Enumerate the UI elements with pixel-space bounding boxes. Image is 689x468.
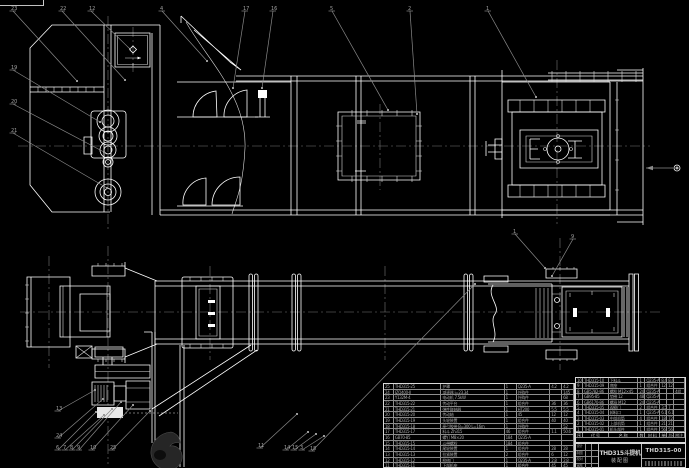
bom-cell: 组合件 — [517, 429, 551, 434]
bom-cell: 底座 — [609, 383, 639, 387]
watermark-logo — [151, 432, 182, 468]
bom-cell: 弹性联轴器 — [441, 407, 504, 412]
bom-left-table: 25THD315-25护罩1Q235-A4.24.224JZQ400-Ⅱ减速器 … — [383, 383, 575, 468]
bom-cell: 6.1 — [667, 410, 674, 414]
bom-cell: 50.6 — [562, 429, 574, 434]
bom-cell: 1 — [638, 410, 645, 414]
bom-cell: 45 — [517, 412, 551, 417]
bom-cell: 垫圈 12 — [609, 394, 639, 398]
leader-line — [410, 11, 417, 114]
bom-cell: 1 — [505, 446, 517, 451]
bom-cell: 料斗 Zh315 — [441, 429, 504, 434]
callout-number: 16 — [271, 6, 277, 12]
bom-cell: THD315-21 — [394, 407, 441, 412]
callout-number: 12 — [89, 6, 95, 12]
callout-number: 3 — [300, 445, 303, 451]
bom-cell: 7 — [576, 394, 583, 398]
bom-cell: 组合件 — [645, 405, 660, 409]
bom-cell: 12 — [667, 383, 674, 387]
leader-dot — [103, 151, 105, 153]
bom-header-cell: 材 料 — [645, 433, 660, 437]
bom-cell: 24 — [638, 400, 645, 404]
bom-cell: 电动机 7.5kW — [441, 395, 504, 400]
leader-line — [91, 11, 130, 49]
bom-cell — [660, 394, 667, 398]
leader-dot — [416, 113, 418, 115]
leader-line — [552, 239, 573, 276]
leader-line — [515, 234, 545, 268]
bom-cell: THD315-12 — [394, 458, 441, 463]
bom-cell: THD315-03 — [583, 416, 609, 420]
bom-cell: 1 — [638, 378, 645, 382]
bom-cell: 184 — [505, 435, 517, 440]
bom-cell — [562, 435, 574, 440]
bom-cell: Q235-A — [645, 394, 660, 398]
leader-dot — [296, 413, 298, 415]
top-view-elevation — [0, 0, 680, 225]
access-door — [115, 33, 150, 67]
bom-cell: 斗带螺栓 — [441, 441, 504, 446]
bom-cell: 16 — [384, 435, 394, 440]
bom-cell: 4.2 — [550, 384, 562, 389]
bom-cell: THD315-22 — [394, 401, 441, 406]
bom-cell: 21 — [667, 421, 674, 425]
bom-cell — [674, 394, 685, 398]
leader-line — [233, 11, 245, 88]
bom-cell: 组合件 — [645, 383, 660, 387]
bom-cell: 1 — [638, 383, 645, 387]
leader-dot — [307, 431, 309, 433]
leader-dot — [129, 48, 131, 50]
bom-cell: 拉紧装置 — [441, 452, 504, 457]
bom-cell: 2.8 — [562, 458, 574, 463]
leader-dot — [387, 109, 389, 111]
callout-number: 20 — [11, 99, 17, 105]
bom-cell: 中部机筒 — [609, 416, 639, 420]
signature-label: 制图 — [576, 451, 586, 457]
drive-unit — [76, 346, 178, 418]
callout-number: 17 — [243, 6, 249, 12]
callout-number: 22 — [60, 6, 66, 12]
leader-dot — [124, 79, 126, 81]
bom-cell: THD315-05 — [583, 405, 609, 409]
bom-cell: 36 — [562, 401, 574, 406]
leader-dot — [99, 121, 101, 123]
bom-cell — [674, 427, 685, 431]
bom-right-table: 10THD315-10下料斗1Q235-A8.48.49THD315-09底座1… — [575, 377, 686, 443]
bom-cell: 4.2 — [562, 384, 574, 389]
bom-header-cell: 数 — [638, 433, 645, 437]
leader-dot — [474, 283, 476, 285]
leader-dot — [261, 87, 263, 89]
callout-number: 15 — [292, 445, 298, 451]
coupling — [114, 386, 126, 401]
bom-cell: 3 — [576, 416, 583, 420]
callout-number: 8 — [70, 445, 73, 451]
bom-cell: 1 — [505, 395, 517, 400]
bom-cell: 外购件 — [517, 424, 551, 429]
bom-cell: 螺栓 M12×45 — [609, 389, 639, 393]
callout-number: 19 — [11, 65, 17, 71]
bom-cell: 15 — [384, 441, 394, 446]
bom-cell: Q235-A — [645, 400, 660, 404]
bom-cell: 19 — [384, 418, 394, 423]
signature-blank — [592, 457, 598, 463]
bom-cell: 28 — [562, 446, 574, 451]
end-view-box — [486, 68, 680, 225]
leader-dot — [102, 398, 104, 400]
bom-cell — [660, 400, 667, 404]
factory-text-strip — [645, 461, 682, 466]
bom-cell: 检修门 — [441, 458, 504, 463]
bucket — [224, 90, 247, 117]
bom-cell: 10 — [576, 378, 583, 382]
leader-line — [58, 390, 95, 411]
bom-cell — [674, 405, 685, 409]
bom-cell: 45 — [550, 463, 562, 468]
bom-cell: 56 — [660, 427, 667, 431]
bom-cell: 145 — [562, 390, 574, 395]
bom-cell: THD315-15 — [394, 441, 441, 446]
bom-cell: 24 — [384, 390, 394, 395]
bom-cell: 1 — [505, 412, 517, 417]
bom-cell: 72 — [667, 416, 674, 420]
bom-cell: 56 — [667, 427, 674, 431]
bom-cell: 组合件 — [645, 427, 660, 431]
signature-label: 设计 — [576, 444, 586, 450]
bom-cell — [674, 378, 685, 382]
bom-header-cell: 总计 — [667, 433, 674, 437]
leader-line — [488, 11, 536, 97]
bom-cell: 1 — [505, 407, 517, 412]
bom-cell: 1 — [505, 458, 517, 463]
leader-dot — [94, 389, 96, 391]
bom-cell: THD315-18 — [394, 424, 441, 429]
bom-cell: 11 — [384, 463, 394, 468]
bom-header-cell: 单件 — [660, 433, 667, 437]
bom-cell: 组合件 — [645, 416, 660, 420]
bom-cell: 1 — [505, 384, 517, 389]
bom-cell: Q235-A — [645, 378, 660, 382]
bom-cell: 牵引胶带 B=300 L=16m — [441, 424, 504, 429]
callout-number: 9 — [77, 445, 80, 451]
bom-cell: 45 — [562, 463, 574, 468]
signature-row: 审核 — [576, 464, 598, 468]
bom-cell — [667, 400, 674, 404]
head-casing-outline — [30, 25, 160, 212]
bom-cell: 减速器 i=23.34 — [441, 390, 504, 395]
bom-row: 11THD315-11下部机座1组合件4545 — [384, 463, 574, 468]
bom-cell: 8.4 — [667, 378, 674, 382]
bom-cell: 传动平台 — [441, 401, 504, 406]
bom-cell: THD315-13 — [394, 452, 441, 457]
bom-cell: 21 — [660, 421, 667, 425]
signature-label: 审核 — [576, 464, 586, 468]
bom-cell: JZQ400-Ⅱ — [394, 390, 441, 395]
leader-line — [260, 414, 297, 448]
bom-cell: THD315-11 — [394, 463, 441, 468]
drive-shaft — [95, 347, 123, 357]
bom-cell: 40 — [562, 418, 574, 423]
bom-cell — [674, 410, 685, 414]
bom-cell: 5 — [576, 405, 583, 409]
leader-dot — [551, 275, 553, 277]
bom-cell: 2.8 — [550, 458, 562, 463]
leader-line — [332, 11, 388, 110]
drawing-sheet: 2322124171652119202113246789102511141531… — [0, 0, 689, 468]
bom-cell — [550, 441, 562, 446]
bom-cell — [660, 389, 667, 393]
leader-dot — [323, 435, 325, 437]
callout-number: 21 — [11, 128, 17, 134]
bom-cell: 14 — [384, 446, 394, 451]
bom-cell: 5.5 — [562, 407, 574, 412]
bom-cell: 12 — [562, 452, 574, 457]
bom-cell: 组合件 — [517, 401, 551, 406]
callout-number: 18 — [310, 446, 316, 452]
bom-cell: 24 — [638, 389, 645, 393]
signature-blank — [592, 444, 598, 450]
bom-cell — [667, 389, 674, 393]
bom-cell: 13 — [384, 452, 394, 457]
bom-cell: THD315-20 — [394, 412, 441, 417]
boot-section — [25, 262, 157, 363]
sheet-border-corner — [0, 0, 44, 6]
bom-cell: 外购件 — [517, 390, 551, 395]
bom-cell: 5.5 — [550, 407, 562, 412]
bom-cell: THD315-01 — [583, 427, 609, 431]
bom-cell: 观察门 — [609, 405, 639, 409]
bom-cell: 1 — [576, 427, 583, 431]
callout-number: 5 — [330, 6, 333, 12]
callout-number: 6 — [56, 445, 59, 451]
leader-line — [72, 409, 112, 450]
signature-blank — [592, 464, 598, 468]
product-name: THD315斗提机 — [599, 448, 640, 457]
bom-cell: THD315-04 — [583, 410, 609, 414]
bom-cell: THD315-10 — [583, 378, 609, 382]
bom-cell: 48 — [638, 394, 645, 398]
bom-cell: 40 — [550, 418, 562, 423]
bom-cell: 上部机筒 — [609, 421, 639, 425]
bom-cell: Q235-A — [645, 410, 660, 414]
bom-cell: 卸料口 — [609, 410, 639, 414]
bom-cell — [674, 383, 685, 387]
bom-cell — [550, 390, 562, 395]
leader-line — [58, 399, 103, 438]
bom-cell: 4 — [638, 416, 645, 420]
bom-cell: 传动轴 — [441, 412, 504, 417]
bucket — [212, 177, 240, 205]
leader-dot — [111, 408, 113, 410]
bom-cell: THD315-09 — [583, 383, 609, 387]
callout-number: 14 — [284, 445, 290, 451]
bom-cell: 6.1 — [660, 410, 667, 414]
signature-blank — [592, 451, 598, 457]
bom-cell: HT200 — [517, 407, 551, 412]
bom-cell: 组合件 — [517, 441, 551, 446]
bom-cell: 1 — [638, 421, 645, 425]
bom-cell — [674, 421, 685, 425]
bom-cell: 46 — [505, 429, 517, 434]
bom-cell — [562, 441, 574, 446]
leader-dot — [206, 60, 208, 62]
bom-cell: 1 — [505, 401, 517, 406]
callout-number: 7 — [63, 445, 66, 451]
bom-cell: 8 — [576, 389, 583, 393]
bom-cell: 2 — [576, 421, 583, 425]
leader-dot — [232, 87, 234, 89]
bom-cell: 尾轮装置 — [441, 446, 504, 451]
hatch-section — [182, 277, 233, 348]
leader-dot — [132, 404, 134, 406]
bom-cell: Y132M-4 — [394, 395, 441, 400]
callout-number: 1 — [486, 6, 489, 12]
bom-cell: 6 — [550, 452, 562, 457]
bom-cell: 21 — [384, 407, 394, 412]
leader-line — [13, 133, 107, 188]
bucket — [193, 91, 217, 117]
bom-cell: 28 — [550, 446, 562, 451]
bom-cell: THD315-19 — [394, 418, 441, 423]
leader-dot — [120, 401, 122, 403]
leader-line — [62, 11, 125, 80]
callout-number: 25 — [110, 445, 116, 451]
pulley-stack — [84, 110, 126, 205]
bom-cell: 12 — [550, 412, 562, 417]
tension-bolt — [258, 90, 267, 98]
leader-dot — [95, 411, 97, 413]
walkway — [30, 87, 104, 92]
leader-dot — [106, 187, 108, 189]
bom-header-cell: 附注 — [674, 433, 685, 437]
bom-cell — [550, 435, 562, 440]
bom-cell: 18 — [384, 424, 394, 429]
bom-cell: 下料斗 — [609, 378, 639, 382]
bom-cell: 组合件 — [517, 446, 551, 451]
bom-header-cell: 序 — [576, 433, 583, 437]
callout-number: 4 — [160, 6, 163, 12]
bom-cell — [550, 424, 562, 429]
bom-cell: THD315-25 — [394, 384, 441, 389]
bom-cell: 20 — [384, 412, 394, 417]
leader-line — [13, 11, 77, 81]
bom-cell: 螺母 M12 — [609, 400, 639, 404]
signature-grid: 设计制图校对审核 — [576, 444, 599, 467]
bom-cell: 2 — [638, 405, 645, 409]
bom-cell: 6 — [576, 400, 583, 404]
doc-type: 装配图 — [611, 457, 629, 464]
arrowhead-icon — [646, 166, 653, 170]
bom-header-cell: 名 称 — [609, 433, 639, 437]
bucket — [183, 178, 206, 205]
leader-line — [13, 104, 104, 152]
leader-dot — [103, 414, 105, 416]
leader-dot — [315, 433, 317, 435]
bom-cell — [550, 395, 562, 400]
bom-cell: 头轮装置 — [441, 418, 504, 423]
bom-cell: 9 — [576, 383, 583, 387]
bom-cell — [674, 416, 685, 420]
bom-cell: Q235-A — [517, 435, 551, 440]
bom-header-row: 序代 号名 称数材 料单件总计附注 — [576, 432, 685, 438]
bom-header-cell: 代 号 — [583, 433, 609, 437]
bom-cell: 12 — [660, 383, 667, 387]
bom-cell: 1 — [505, 424, 517, 429]
bom-cell — [667, 394, 674, 398]
bom-cell: 12 — [384, 458, 394, 463]
bom-cell: 3.5 — [660, 405, 667, 409]
callout-number: 1 — [513, 229, 516, 235]
bom-cell: 组合件 — [517, 418, 551, 423]
callout-number: 13 — [56, 406, 62, 412]
bom-cell: 护罩 — [441, 384, 504, 389]
bom-cell: Q235-A — [517, 458, 551, 463]
chute-and-buckets — [177, 22, 291, 214]
shaft-end — [547, 138, 569, 160]
bom-cell: 12 — [562, 412, 574, 417]
leader-line — [13, 70, 100, 122]
bom-cell: 2 — [505, 452, 517, 457]
bom-cell: 螺钉 M8×20 — [441, 435, 504, 440]
bom-cell: GB95-85 — [583, 394, 609, 398]
leader-line — [162, 11, 207, 61]
bom-cell: 8.4 — [660, 378, 667, 382]
leader-line — [262, 11, 273, 88]
signature-label: 校对 — [576, 457, 586, 463]
bom-cell: GB6170-86 — [583, 400, 609, 404]
bom-cell: 组合件 — [517, 463, 551, 468]
bom-cell: 组合件 — [517, 452, 551, 457]
bom-cell: Q235-A — [517, 384, 551, 389]
bom-cell: GB70-85 — [394, 435, 441, 440]
bom-cell: 184 — [505, 441, 517, 446]
bom-cell: Q235-A — [645, 389, 660, 393]
leader-dot — [149, 410, 151, 412]
bom-cell: GB5782-86 — [583, 389, 609, 393]
callout-number: 10 — [90, 445, 96, 451]
motor-base — [97, 407, 123, 418]
bom-cell: 22 — [384, 401, 394, 406]
callout-number: 9 — [571, 234, 574, 240]
bom-cell: 25 — [384, 384, 394, 389]
bom-cell: 68 — [562, 395, 574, 400]
drive-motor — [126, 381, 150, 409]
bom-cell: THD315-14 — [394, 446, 441, 451]
bom-cell: 1 — [505, 390, 517, 395]
callout-number: 24 — [56, 433, 62, 439]
leader-dot — [535, 96, 537, 98]
bom-cell: 4 — [576, 410, 583, 414]
bom-cell: THD315-17 — [394, 429, 441, 434]
bom-cell: 1 — [505, 418, 517, 423]
bom-cell: 4组 — [674, 389, 685, 393]
bom-cell: 18 — [660, 416, 667, 420]
eyebolt-icon — [674, 165, 680, 171]
bom-cell: 52 — [562, 424, 574, 429]
bom-cell: 1 — [505, 463, 517, 468]
callout-number: 2 — [408, 6, 411, 12]
bom-cell: 23 — [384, 395, 394, 400]
bom-cell: 下部机座 — [441, 463, 504, 468]
leader-dot — [544, 267, 546, 269]
callout-number: 23 — [11, 6, 17, 12]
bom-cell: 17 — [384, 429, 394, 434]
leader-dot — [76, 80, 78, 82]
bom-cell: 36 — [550, 401, 562, 406]
bom-cell: THD315-02 — [583, 421, 609, 425]
bom-cell: 1 — [638, 427, 645, 431]
